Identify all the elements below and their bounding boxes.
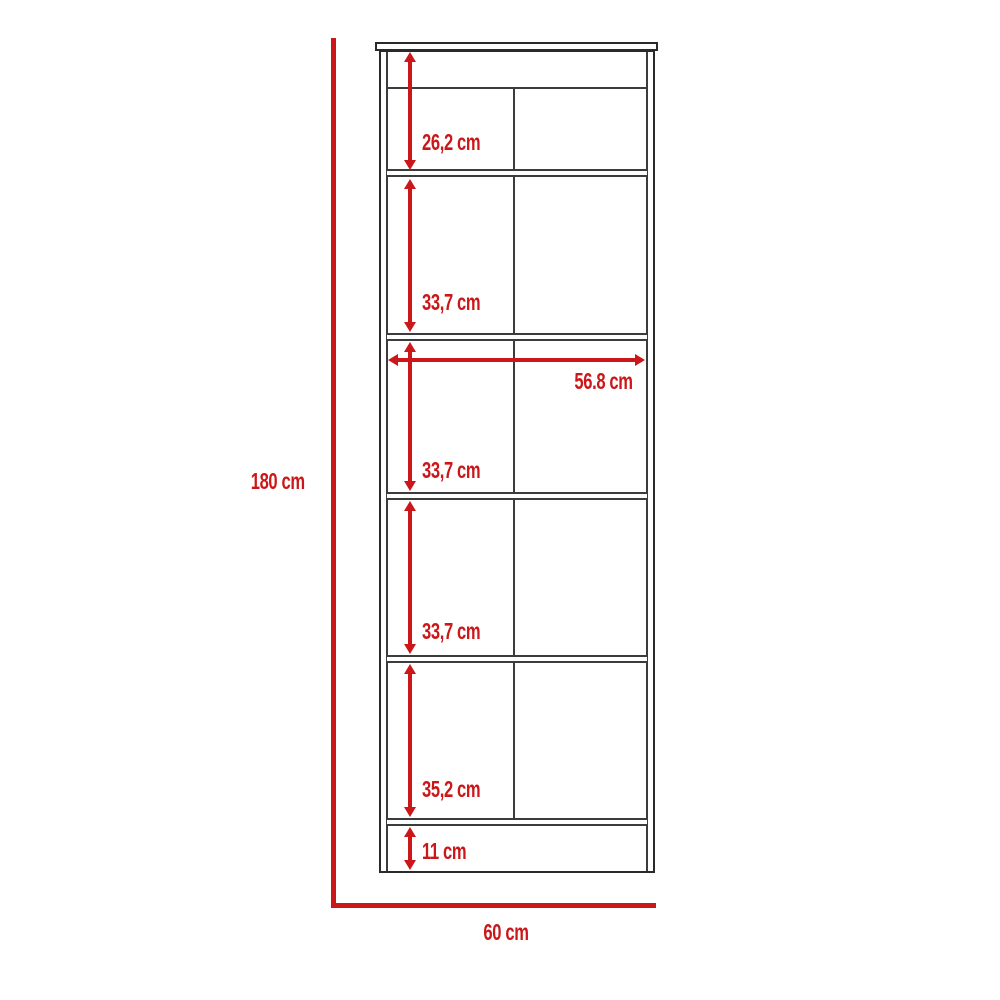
interior-width-label: 56.8 cm xyxy=(574,370,632,393)
overall-height-guide-line xyxy=(331,38,336,908)
arrow-down-icon xyxy=(404,322,416,332)
section-height-label: 26,2 cm xyxy=(422,131,480,154)
dimension-section-4: 33,7 cm xyxy=(404,501,416,654)
section-height-label: 33,7 cm xyxy=(422,620,480,643)
section-height-label: 33,7 cm xyxy=(422,291,480,314)
overall-width-guide-line xyxy=(331,903,656,908)
dimension-section-2: 33,7 cm xyxy=(404,179,416,332)
shelf xyxy=(387,169,647,177)
arrow-right-icon xyxy=(635,354,645,366)
arrow-down-icon xyxy=(404,644,416,654)
dimension-section-6: 11 cm xyxy=(404,827,416,870)
furniture-dimension-diagram: 180 cm 60 cm 26,2 cm 33,7 cm 33,7 cm 33,… xyxy=(0,0,1000,1000)
shelf xyxy=(387,655,647,663)
cabinet-body xyxy=(379,50,655,873)
dimension-section-1: 26,2 cm xyxy=(404,52,416,170)
arrow-down-icon xyxy=(404,860,416,870)
overall-height-label: 180 cm xyxy=(251,470,304,493)
center-divider-line xyxy=(513,87,515,818)
section-height-label: 11 cm xyxy=(422,840,466,863)
section-height-label: 33,7 cm xyxy=(422,459,480,482)
shelf xyxy=(387,492,647,500)
section-height-label: 35,2 cm xyxy=(422,778,480,801)
arrow-down-icon xyxy=(404,481,416,491)
dimension-interior-width: 56.8 cm xyxy=(388,354,645,366)
shelf xyxy=(387,333,647,341)
arrow-down-icon xyxy=(404,160,416,170)
arrow-down-icon xyxy=(404,807,416,817)
shelf xyxy=(387,818,647,826)
overall-width-label: 60 cm xyxy=(480,921,532,944)
dimension-section-5: 35,2 cm xyxy=(404,664,416,817)
top-rail-line xyxy=(387,87,647,89)
